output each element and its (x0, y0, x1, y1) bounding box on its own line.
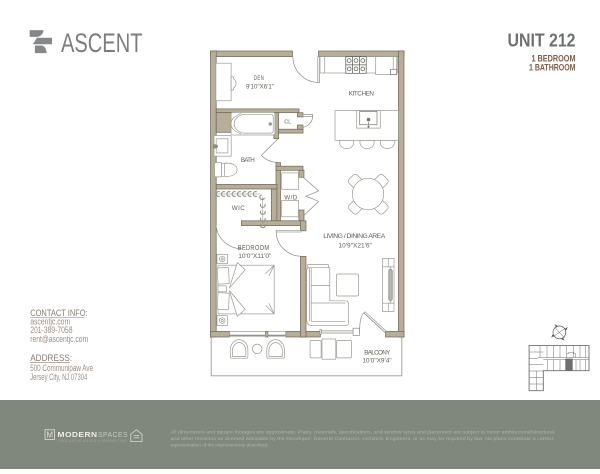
svg-text:DEN: DEN (254, 76, 265, 82)
svg-text:CL: CL (284, 120, 291, 126)
svg-text:WIC: WIC (232, 205, 246, 212)
svg-text:ASCENT: ASCENT (61, 28, 143, 58)
svg-text:and other revisions as deemed: and other revisions as deemed advisable … (171, 436, 555, 442)
svg-text:UNIT 212: UNIT 212 (508, 30, 576, 50)
svg-text:M: M (47, 431, 54, 440)
svg-text:10'0"X11'0": 10'0"X11'0" (238, 253, 272, 260)
svg-text:rent@ascentjc.com: rent@ascentjc.com (30, 334, 88, 344)
svg-text:10'0"X9'4": 10'0"X9'4" (362, 359, 391, 365)
svg-text:EXCLUSIVE SALES + MARKETING: EXCLUSIVE SALES + MARKETING (58, 439, 128, 443)
svg-text:BATH: BATH (241, 157, 256, 164)
svg-text:ADDRESS:: ADDRESS: (30, 353, 72, 363)
svg-text:1 BATHROOM: 1 BATHROOM (529, 62, 576, 72)
svg-text:LIVING / DINING AREA: LIVING / DINING AREA (323, 233, 386, 240)
svg-text:representation of the improvem: representation of the improvements descr… (171, 442, 269, 448)
svg-text:Jersey City, NJ 07304: Jersey City, NJ 07304 (30, 372, 87, 382)
svg-text:9'10"X6'1": 9'10"X6'1" (246, 85, 274, 91)
svg-text:10'9"X21'6": 10'9"X21'6" (339, 242, 373, 249)
svg-text:W/D: W/D (284, 195, 298, 202)
svg-text:All dimensions and square foot: All dimensions and square footages are a… (171, 430, 556, 436)
svg-text:SPACES: SPACES (98, 430, 128, 439)
svg-text:MODERN: MODERN (58, 430, 98, 439)
svg-text:BEDROOM: BEDROOM (238, 243, 270, 252)
svg-text:BALCONY: BALCONY (364, 349, 391, 356)
svg-text:KITCHEN: KITCHEN (349, 91, 375, 98)
